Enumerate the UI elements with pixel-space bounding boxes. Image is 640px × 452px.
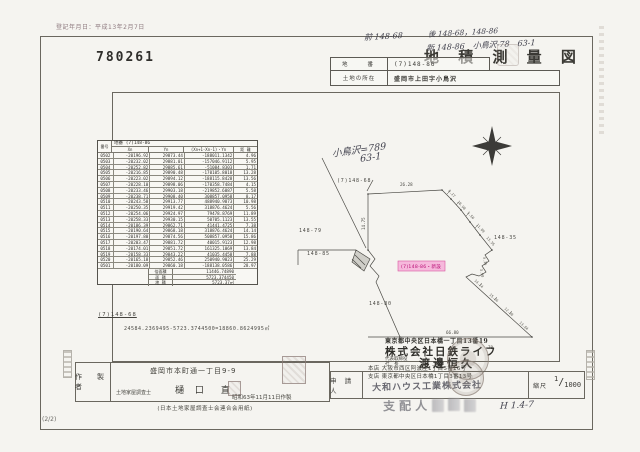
land-location-label: 土地の所在 (330, 70, 388, 86)
cell: 29930.15 (150, 217, 185, 222)
cell: 0513 (98, 217, 114, 222)
cell: 50705.1123 (185, 217, 234, 222)
lot-number-value: (7)148-86 (387, 57, 490, 71)
maker-name: 樋 口 直 (175, 383, 234, 396)
cell: -20252.82 (114, 165, 151, 170)
page-number: (2/2) (42, 416, 56, 423)
coordinate-table-header: 番号 地番 (7)148-86 Xn Yn (Xn+1-Xn-1)・Yn 距 離 (98, 141, 257, 153)
small-hatched-parcel (352, 250, 370, 271)
cell: 28.97 (234, 263, 257, 268)
cell: 29860.18 (150, 263, 185, 268)
right-edge-note-smudge (586, 350, 595, 380)
coord-rows: 0502-20196.9229873.44-188011.13424.96050… (98, 153, 257, 269)
cell: 29913.77 (150, 199, 185, 204)
applicant-divider-2 (528, 371, 529, 399)
cell: -20158.33 (114, 252, 151, 257)
cell: 0502 (98, 153, 114, 158)
segment-length-label: 14.14 (473, 279, 484, 289)
cell: 0503 (98, 159, 114, 164)
lot-label-148-35: 148-35 (494, 235, 517, 241)
segment-length-label: 3.90 (479, 268, 484, 277)
dim-14-75: 14.75 (361, 217, 366, 230)
cell: 41035.4458 (185, 252, 234, 257)
cell: -188138.0586 (185, 263, 234, 268)
cell: 29890.48 (150, 170, 185, 175)
lot-label-148-85: 148-85 (307, 251, 330, 257)
cell: -20174.01 (114, 246, 151, 251)
remainder-lot-number: (7)148-68 (98, 312, 137, 318)
cell: -188011.1342 (185, 153, 234, 158)
maker-divider (110, 362, 111, 402)
cell: 29852.46 (150, 257, 185, 262)
scale-value: 1/1000 (554, 375, 581, 389)
cell: 79478.8769 (185, 211, 234, 216)
cell: 15.86 (234, 234, 257, 239)
cell: -170105.8018 (185, 170, 234, 175)
cell: -20223.02 (114, 176, 151, 181)
remainder-area-calculation: 24584.2369495-5723.3744500=18860.8624995… (124, 325, 270, 332)
cell: 0501 (98, 263, 114, 268)
cell: 0515 (98, 228, 114, 233)
maker-qualification: 土地家屋調査士 (116, 389, 151, 396)
cell: 8.17 (234, 194, 257, 199)
segment-length-label: 11.89 (475, 223, 485, 234)
cell: 29919.42 (150, 205, 185, 210)
cell: 0520 (98, 257, 114, 262)
cell: 14.14 (234, 228, 257, 233)
cell: 29908.40 (150, 194, 185, 199)
registration-date-stamp: 登記年月日：平成13年2月7日 (56, 22, 145, 31)
cell: 5.95 (234, 159, 257, 164)
cell: -20203.47 (114, 240, 151, 245)
cell: -219852.6087 (185, 188, 234, 193)
cell: -20228.10 (114, 182, 151, 187)
cell: 29862.71 (150, 223, 185, 228)
cell: 29898.06 (150, 182, 185, 187)
cell: 4.15 (234, 182, 257, 187)
paper-form-note: (日本土地家屋調査士会連合会用紙) (95, 404, 315, 412)
cell: 29881.01 (150, 159, 185, 164)
cell: 29881.72 (150, 240, 185, 245)
cell: 29894.12 (150, 176, 185, 181)
cell: 0514 (98, 223, 114, 228)
cell: 29885.61 (150, 165, 185, 170)
cell: 29924.97 (150, 211, 185, 216)
stamp-overlay (497, 44, 519, 66)
cell: -20196.92 (114, 153, 151, 158)
cell: 0518 (98, 246, 114, 251)
cell: 29843.22 (150, 252, 185, 257)
segment-length-label: 15.86 (488, 293, 499, 303)
scale-label: 縮尺 (533, 381, 547, 390)
cell: 318876.4624 (185, 228, 234, 233)
double-area-label: 倍面積 (149, 269, 173, 274)
double-area-value: 11446.74890 (173, 269, 236, 274)
cell: 40015.9123 (185, 240, 234, 245)
cell: 0512 (98, 211, 114, 216)
cell: 29851.72 (150, 246, 185, 251)
cell: 29903.18 (150, 188, 185, 193)
cell: 7.38 (234, 223, 257, 228)
lot-label-148-80: 148-80 (369, 301, 392, 307)
maker-office-address: 盛岡市本町通一丁目9-9 (150, 366, 236, 376)
cell: 0511 (98, 205, 114, 210)
cell: 161325.1069 (185, 246, 234, 251)
dim-26-28: 26.28 (400, 182, 413, 187)
area-label: 面 積 (149, 275, 173, 280)
cell: 0505 (98, 170, 114, 175)
manager-stamp: 支配人 (383, 397, 431, 415)
cell: 13.56 (234, 176, 257, 181)
cell: -20254.06 (114, 211, 151, 216)
lot-148-85-lines (298, 250, 400, 337)
scanner-code-smudge (599, 26, 604, 136)
cell: 7.88 (234, 252, 257, 257)
lot-number-label: 地 番 (330, 57, 388, 71)
cell: -20197.80 (114, 234, 151, 239)
cell: 13.28 (234, 170, 257, 175)
lot-label-148-79: 148-79 (299, 228, 322, 234)
highlighted-lot-label: (7)148-86・新設 (401, 263, 441, 270)
col-point-number: 番号 (98, 141, 112, 152)
parcel-area-value: 5723.37㎡ (173, 280, 236, 286)
area-value: 5723.374450 (173, 275, 236, 280)
cell: -20243.58 (114, 199, 151, 204)
cell: 508857.0958 (185, 234, 234, 239)
land-location-value: 盛岡市上田字小鳥沢 (387, 70, 560, 86)
cell: 11.89 (234, 211, 257, 216)
cell: 0509 (98, 194, 114, 199)
cell: 0507 (98, 182, 114, 187)
cell: 29874.56 (150, 234, 185, 239)
parcel-area-label: 地 積 (149, 280, 173, 286)
applicant-label: 申 請 人 (330, 371, 362, 399)
cell: 0508 (98, 188, 114, 193)
handwritten-approval: H 1.4-7 (500, 400, 534, 412)
applicant-seal-stamp (448, 360, 484, 396)
cell: 1.71 (234, 165, 257, 170)
cell: 41441.4725 (185, 223, 234, 228)
boundary-tick-marks (447, 191, 512, 314)
coordinate-table: 番号 地番 (7)148-86 Xn Yn (Xn+1-Xn-1)・Yn 距 離… (97, 140, 258, 285)
applicant-divider-1 (362, 371, 363, 399)
handwritten-prev-lot: 前 148-68 (364, 30, 403, 43)
cell: 488940.9873 (185, 199, 234, 204)
maker-label: 作 製 者 (75, 362, 110, 402)
parcel-boundary (368, 190, 532, 337)
cell: 0506 (98, 176, 114, 181)
segment-length-label: 4.35 (482, 256, 487, 265)
cell: 13.84 (234, 246, 257, 251)
cell: 5.56 (234, 205, 257, 210)
cell: 29868.18 (150, 228, 185, 233)
scanned-survey-document: 登記年月日：平成13年2月7日 780261 (2/2) 前 148-68 後 … (0, 0, 640, 452)
cell: -20216.85 (114, 170, 151, 175)
cell: 4.96 (234, 153, 257, 158)
cell: 5.58 (234, 188, 257, 193)
cell: 13.55 (234, 217, 257, 222)
cell: 0504 (98, 165, 114, 170)
cell: 12.98 (234, 240, 257, 245)
surveyor-association-stamp (282, 356, 306, 384)
left-edge-note-smudge (63, 350, 72, 378)
survey-map: (7)148-86・新設 (7)148-68148-79148-85148-80… (280, 118, 580, 368)
cell: -20238.71 (114, 194, 151, 199)
maker-date: 昭和63年11月11日作製 (232, 393, 292, 401)
segment-length-label: 10.98 (456, 200, 466, 211)
cell: -20258.33 (114, 217, 151, 222)
cell: -20233.46 (114, 188, 151, 193)
cell: 25.29 (234, 257, 257, 262)
cell: 0516 (98, 234, 114, 239)
cell: 0517 (98, 240, 114, 245)
cell: 0519 (98, 252, 114, 257)
cell: -20165.18 (114, 257, 151, 262)
cell: -188115.8428 (185, 176, 234, 181)
cell: -51084.8303 (185, 165, 234, 170)
cell: -170358.7484 (185, 182, 234, 187)
cell: -20190.64 (114, 228, 151, 233)
cell: 250940.9023 (185, 257, 234, 262)
lot-label-148-68: (7)148-68 (337, 178, 371, 184)
stamp-name-smudge (464, 399, 476, 412)
cell: 318876.4624 (185, 205, 234, 210)
cell: 308857.0958 (185, 194, 234, 199)
cell: 29873.44 (150, 153, 185, 158)
adjacent-boundary-line (322, 158, 366, 248)
stamp-name-smudge (448, 398, 460, 411)
area-summary: 倍面積11446.74890 面 積5723.374450 地 積5723.37… (148, 269, 236, 286)
document-number: 780261 (96, 50, 155, 65)
cell: 0510 (98, 199, 114, 204)
cell: -20180.09 (114, 263, 151, 268)
cell: -20232.02 (114, 159, 151, 164)
north-arrow-icon (472, 126, 512, 166)
dim-66-80: 66.80 (446, 330, 459, 335)
cell: 10.98 (234, 199, 257, 204)
cell: -157046.9112 (185, 159, 234, 164)
cell: -20250.35 (114, 205, 151, 210)
stamp-name-smudge (432, 399, 444, 412)
cell: -20186.39 (114, 223, 151, 228)
